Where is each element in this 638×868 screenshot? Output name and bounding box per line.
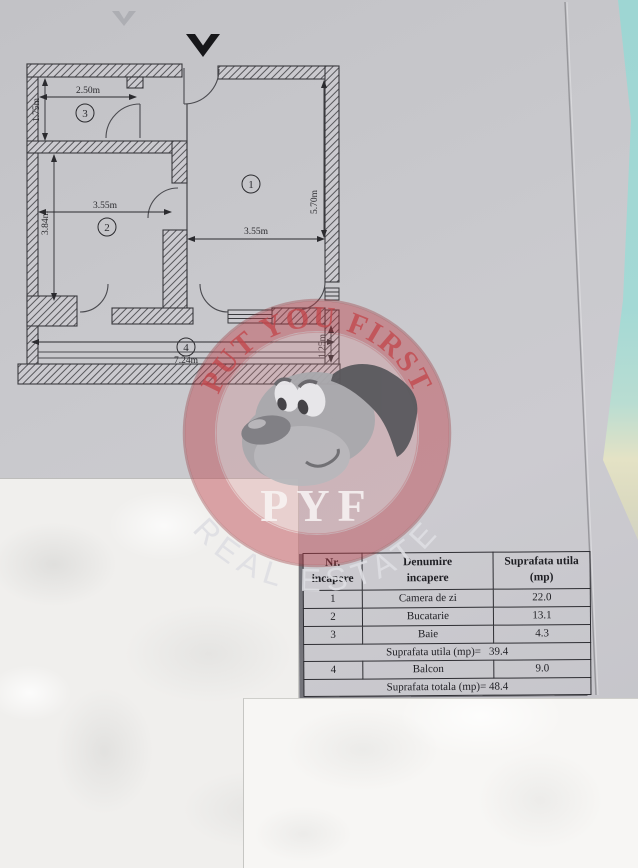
dim-room3-height: 1.75m — [32, 97, 42, 122]
dim-room2-height: 3.84m — [41, 210, 51, 235]
door-arc-balcony-left — [80, 284, 108, 312]
door-arc-bathroom — [106, 104, 140, 138]
floor-plan-drawing: 2.50m 1.75m 3.55m 3.84m 3.55m 5.70m 7.24… — [0, 0, 380, 420]
dim-room2-width: 3.55m — [93, 201, 118, 211]
walls — [18, 64, 340, 384]
cell-nr: 1 — [303, 590, 362, 608]
wall-top-right — [218, 66, 336, 79]
table-row: 1 Camera de zi 22.0 — [303, 588, 590, 608]
cell-nr: 2 — [303, 608, 362, 626]
total-cell: Suprafata totala (mp)= 48.4 — [304, 677, 591, 696]
dim-balcony-depth: 1.25m — [318, 333, 328, 358]
room-label-3: 3 — [82, 108, 88, 120]
north-arrow-icon — [186, 34, 220, 57]
table-header-row: Nr. incapere Denumire incapere Suprafata… — [303, 551, 590, 590]
cell-nr: 3 — [304, 626, 363, 644]
cell-area: 9.0 — [494, 659, 591, 678]
wall-divider-upper — [172, 141, 187, 183]
room-label-1: 1 — [248, 179, 254, 191]
cell-nr: 4 — [304, 661, 363, 679]
door-arc-kitchen — [148, 188, 178, 218]
dim-room1-width: 3.55m — [244, 227, 269, 237]
wall-top-notch — [127, 77, 143, 88]
area-table: Nr. incapere Denumire incapere Suprafata… — [303, 551, 592, 697]
wall-mid-horizontal — [27, 141, 182, 153]
subtotal-row: Suprafata utila (mp)=39.4 — [304, 642, 591, 661]
room-label-4: 4 — [183, 342, 189, 354]
dim-room3-width: 2.50m — [76, 86, 101, 96]
cell-name: Baie — [363, 625, 494, 644]
door-arc-balcony-right — [297, 282, 325, 310]
table-row: 2 Bucatarie 13.1 — [303, 606, 590, 626]
wall-step-left — [27, 296, 77, 326]
wall-balcony-outer — [18, 364, 340, 384]
cell-area: 22.0 — [493, 588, 590, 607]
door-swings — [80, 68, 325, 312]
cell-name: Camera de zi — [362, 589, 493, 608]
header-suprafata: Suprafata utila (mp) — [493, 551, 590, 589]
window-bottom — [228, 310, 272, 323]
wall-divider-lower — [163, 230, 187, 310]
dim-balcony-width: 7.24m — [174, 356, 199, 366]
table-row-balcony: 4 Balcon 9.0 — [304, 659, 591, 679]
faint-ghost-arrow — [112, 11, 136, 26]
window-right — [325, 288, 339, 300]
room-label-2: 2 — [104, 222, 110, 234]
wall-bottom-a — [112, 308, 193, 324]
wall-right-upper — [325, 66, 339, 282]
header-nr: Nr. incapere — [303, 553, 362, 590]
dim-room1-height: 5.70m — [310, 189, 320, 214]
door-arc-entrance — [184, 69, 219, 104]
cell-area: 4.3 — [494, 624, 591, 643]
door-arc-balcony-mid — [200, 284, 228, 312]
header-denumire: Denumire incapere — [362, 552, 493, 590]
table-row: 3 Baie 4.3 — [304, 624, 591, 644]
subtotal-cell: Suprafata utila (mp)=39.4 — [304, 642, 591, 661]
scanned-floor-plan-page: 2.50m 1.75m 3.55m 3.84m 3.55m 5.70m 7.24… — [0, 0, 638, 867]
cell-area: 13.1 — [493, 606, 590, 625]
wall-top-left — [27, 64, 182, 77]
cell-name: Bucatarie — [362, 607, 493, 626]
cell-name: Balcon — [363, 660, 494, 679]
white-sheet-bottom-right — [243, 698, 638, 868]
total-row: Suprafata totala (mp)= 48.4 — [304, 677, 591, 696]
